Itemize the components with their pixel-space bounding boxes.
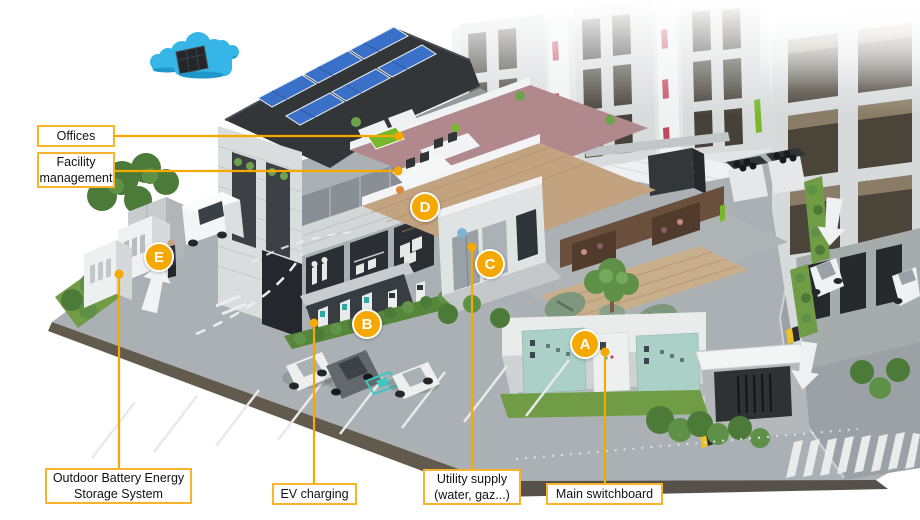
isometric-building-diagram: Offices Facility management Outdoor Batt… (0, 0, 920, 520)
marker-d-facility-management[interactable]: D (410, 192, 440, 222)
callout-offices: Offices (37, 125, 115, 147)
marker-e-battery-storage[interactable]: E (144, 242, 174, 272)
top-right-fade (760, 0, 920, 90)
callout-facility-management: Facility management (37, 152, 115, 188)
building-illustration (0, 0, 920, 520)
cloud-solar-icon (150, 32, 239, 79)
marker-c-utility-supply[interactable]: C (475, 249, 505, 279)
marker-b-ev-charging[interactable]: B (352, 309, 382, 339)
callout-utility-supply: Utility supply (water, gaz...) (423, 469, 521, 505)
callout-outdoor-battery-storage: Outdoor Battery Energy Storage System (45, 468, 192, 504)
marker-a-main-switchboard[interactable]: A (570, 329, 600, 359)
callout-ev-charging: EV charging (272, 483, 357, 505)
callout-main-switchboard: Main switchboard (546, 483, 663, 505)
